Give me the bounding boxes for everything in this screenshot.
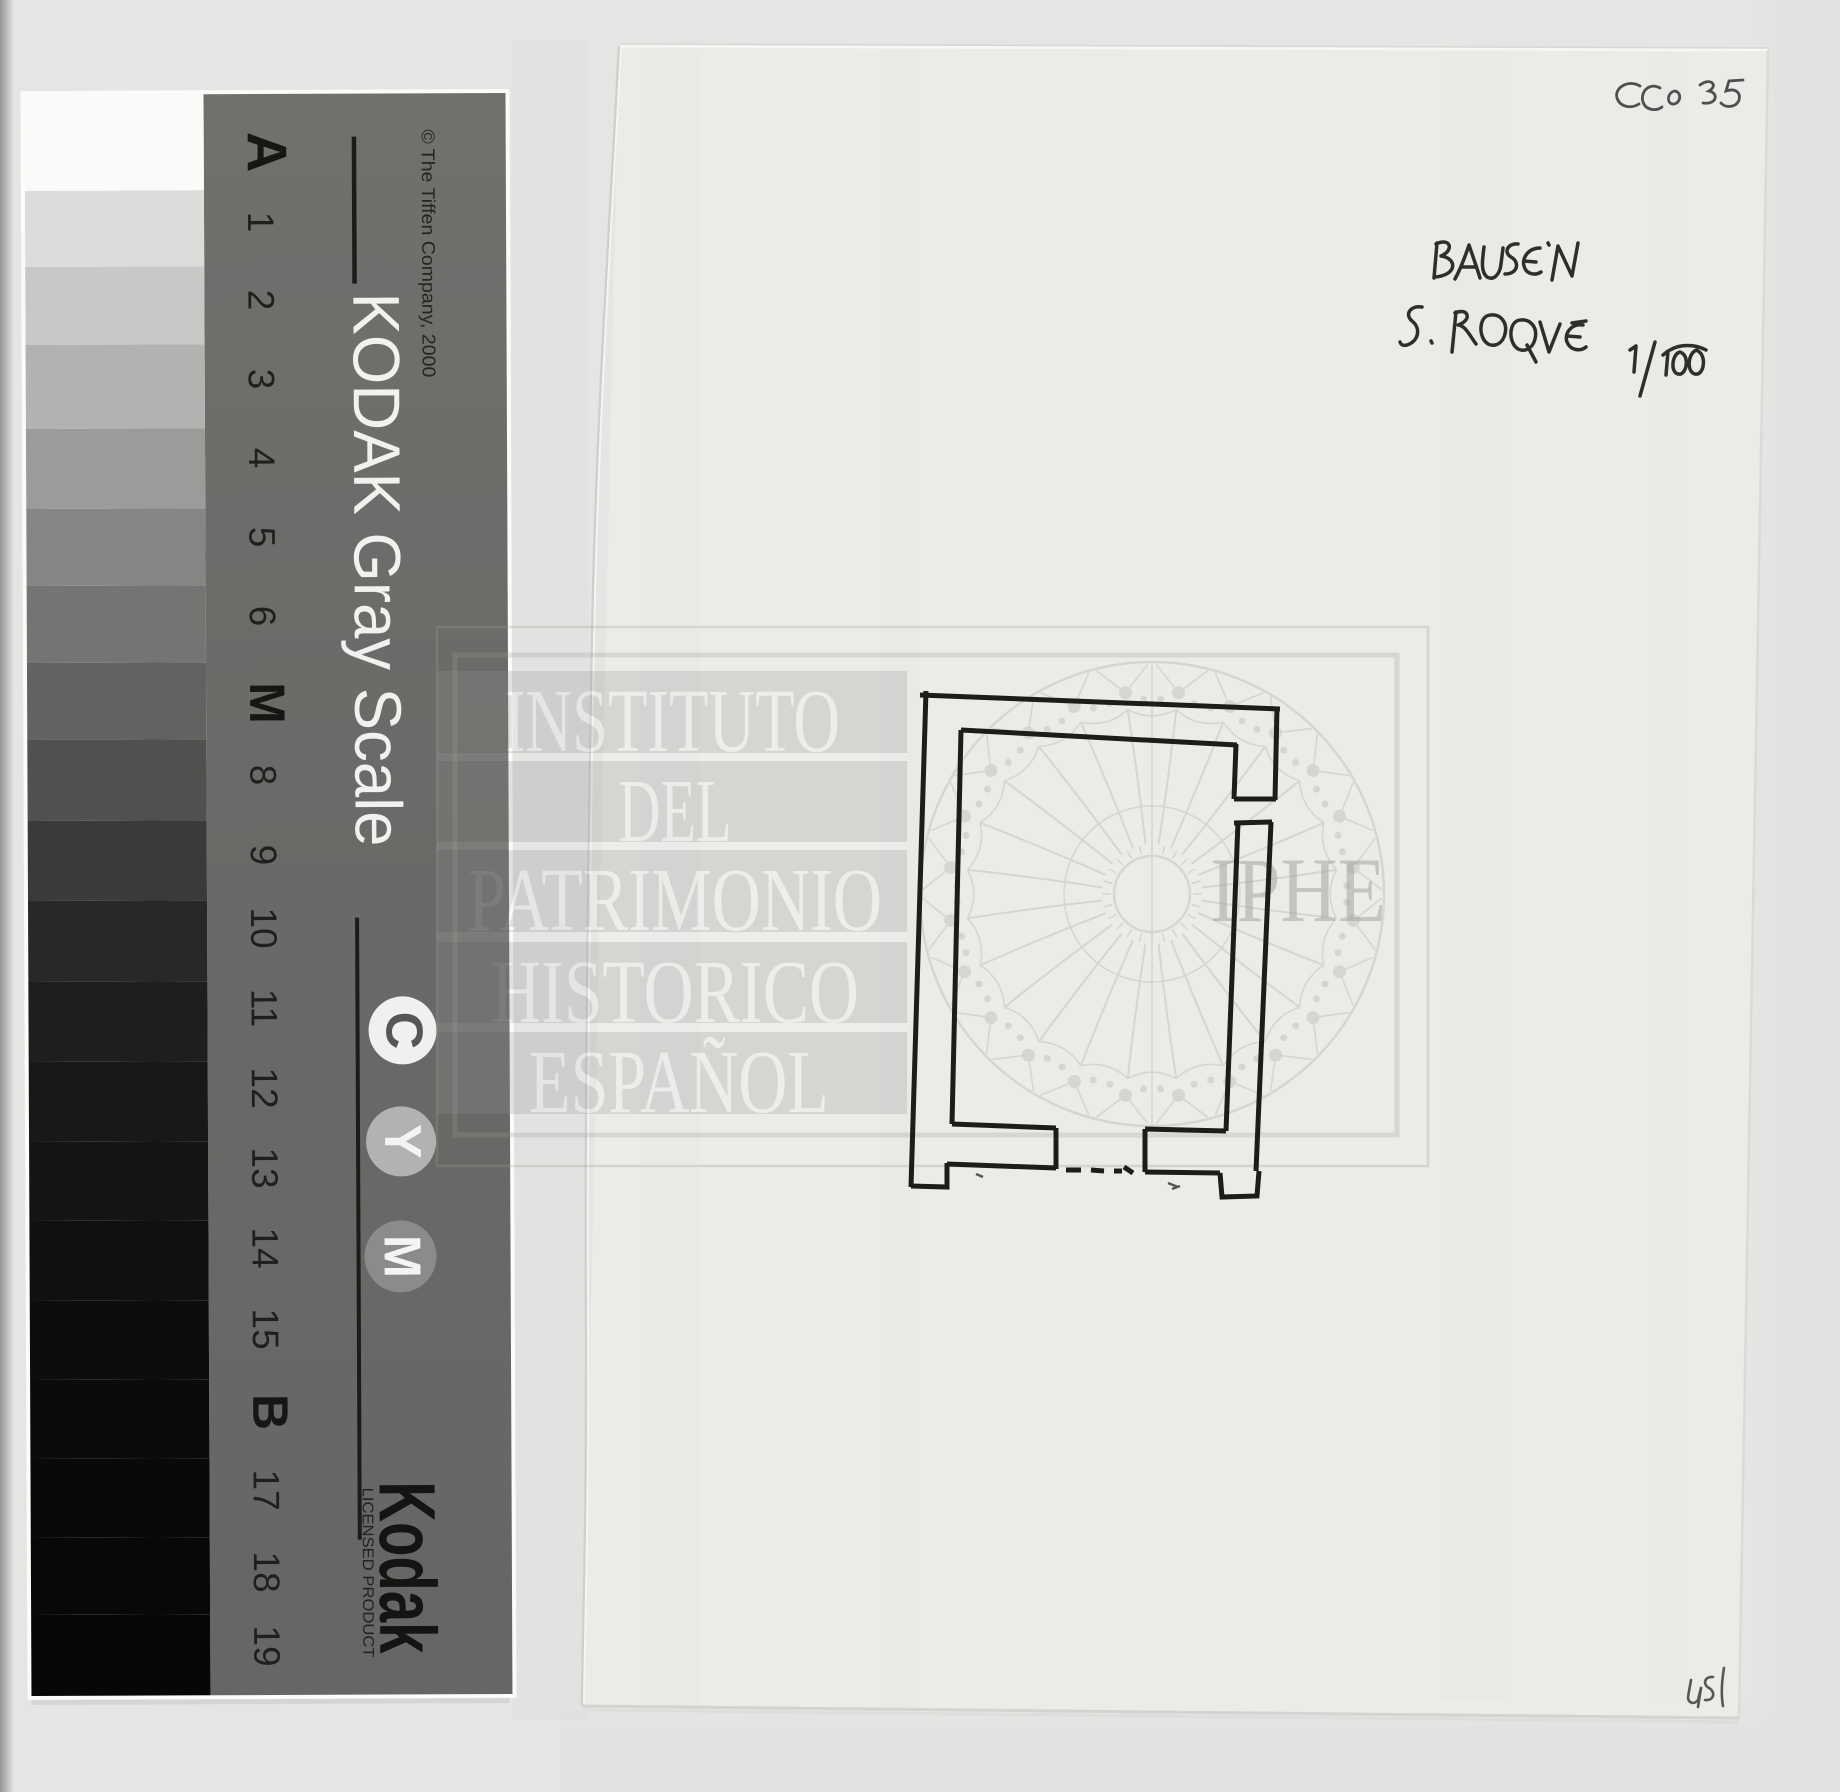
svg-text:9: 9 bbox=[243, 845, 284, 866]
svg-text:12: 12 bbox=[244, 1067, 285, 1108]
svg-text:2: 2 bbox=[240, 290, 281, 311]
svg-text:LICENSED PRODUCT: LICENSED PRODUCT bbox=[359, 1488, 377, 1659]
svg-text:M: M bbox=[372, 1235, 430, 1279]
svg-text:5: 5 bbox=[241, 527, 282, 548]
svg-text:14: 14 bbox=[244, 1227, 285, 1268]
svg-text:18: 18 bbox=[246, 1551, 287, 1592]
svg-text:Y: Y bbox=[373, 1124, 431, 1159]
svg-text:10: 10 bbox=[243, 907, 284, 948]
svg-text:3: 3 bbox=[241, 369, 282, 390]
svg-text:C: C bbox=[374, 1012, 432, 1050]
svg-text:© The Tiffen Company, 2000: © The Tiffen Company, 2000 bbox=[418, 129, 440, 377]
svg-text:1: 1 bbox=[240, 212, 281, 233]
svg-text:ESPAÑOL: ESPAÑOL bbox=[529, 1033, 829, 1132]
svg-text:A: A bbox=[236, 132, 299, 173]
svg-text:15: 15 bbox=[245, 1308, 286, 1349]
svg-text:B: B bbox=[242, 1394, 298, 1430]
svg-text:6: 6 bbox=[242, 606, 283, 627]
svg-text:13: 13 bbox=[244, 1147, 285, 1188]
svg-text:KODAK Gray Scale: KODAK Gray Scale bbox=[339, 292, 415, 846]
svg-text:19: 19 bbox=[246, 1625, 287, 1666]
svg-text:4: 4 bbox=[241, 448, 282, 469]
svg-text:M: M bbox=[239, 682, 295, 724]
svg-text:8: 8 bbox=[242, 765, 283, 786]
svg-text:11: 11 bbox=[243, 989, 284, 1028]
svg-text:17: 17 bbox=[245, 1469, 286, 1510]
